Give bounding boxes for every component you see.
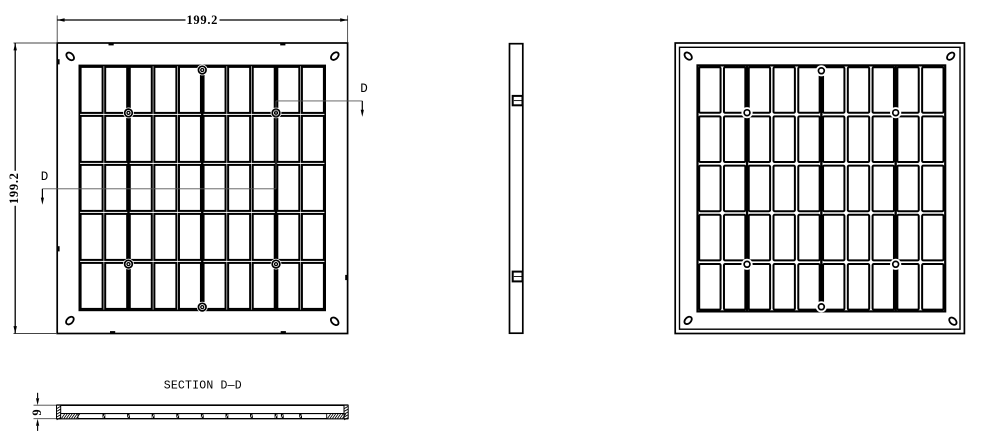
svg-text:199.2: 199.2 xyxy=(7,172,21,204)
svg-text:9: 9 xyxy=(30,409,44,416)
svg-text:199.2: 199.2 xyxy=(186,13,218,27)
svg-text:SECTION D—D: SECTION D—D xyxy=(164,380,242,393)
svg-text:D: D xyxy=(41,170,49,184)
svg-text:D: D xyxy=(360,82,368,96)
